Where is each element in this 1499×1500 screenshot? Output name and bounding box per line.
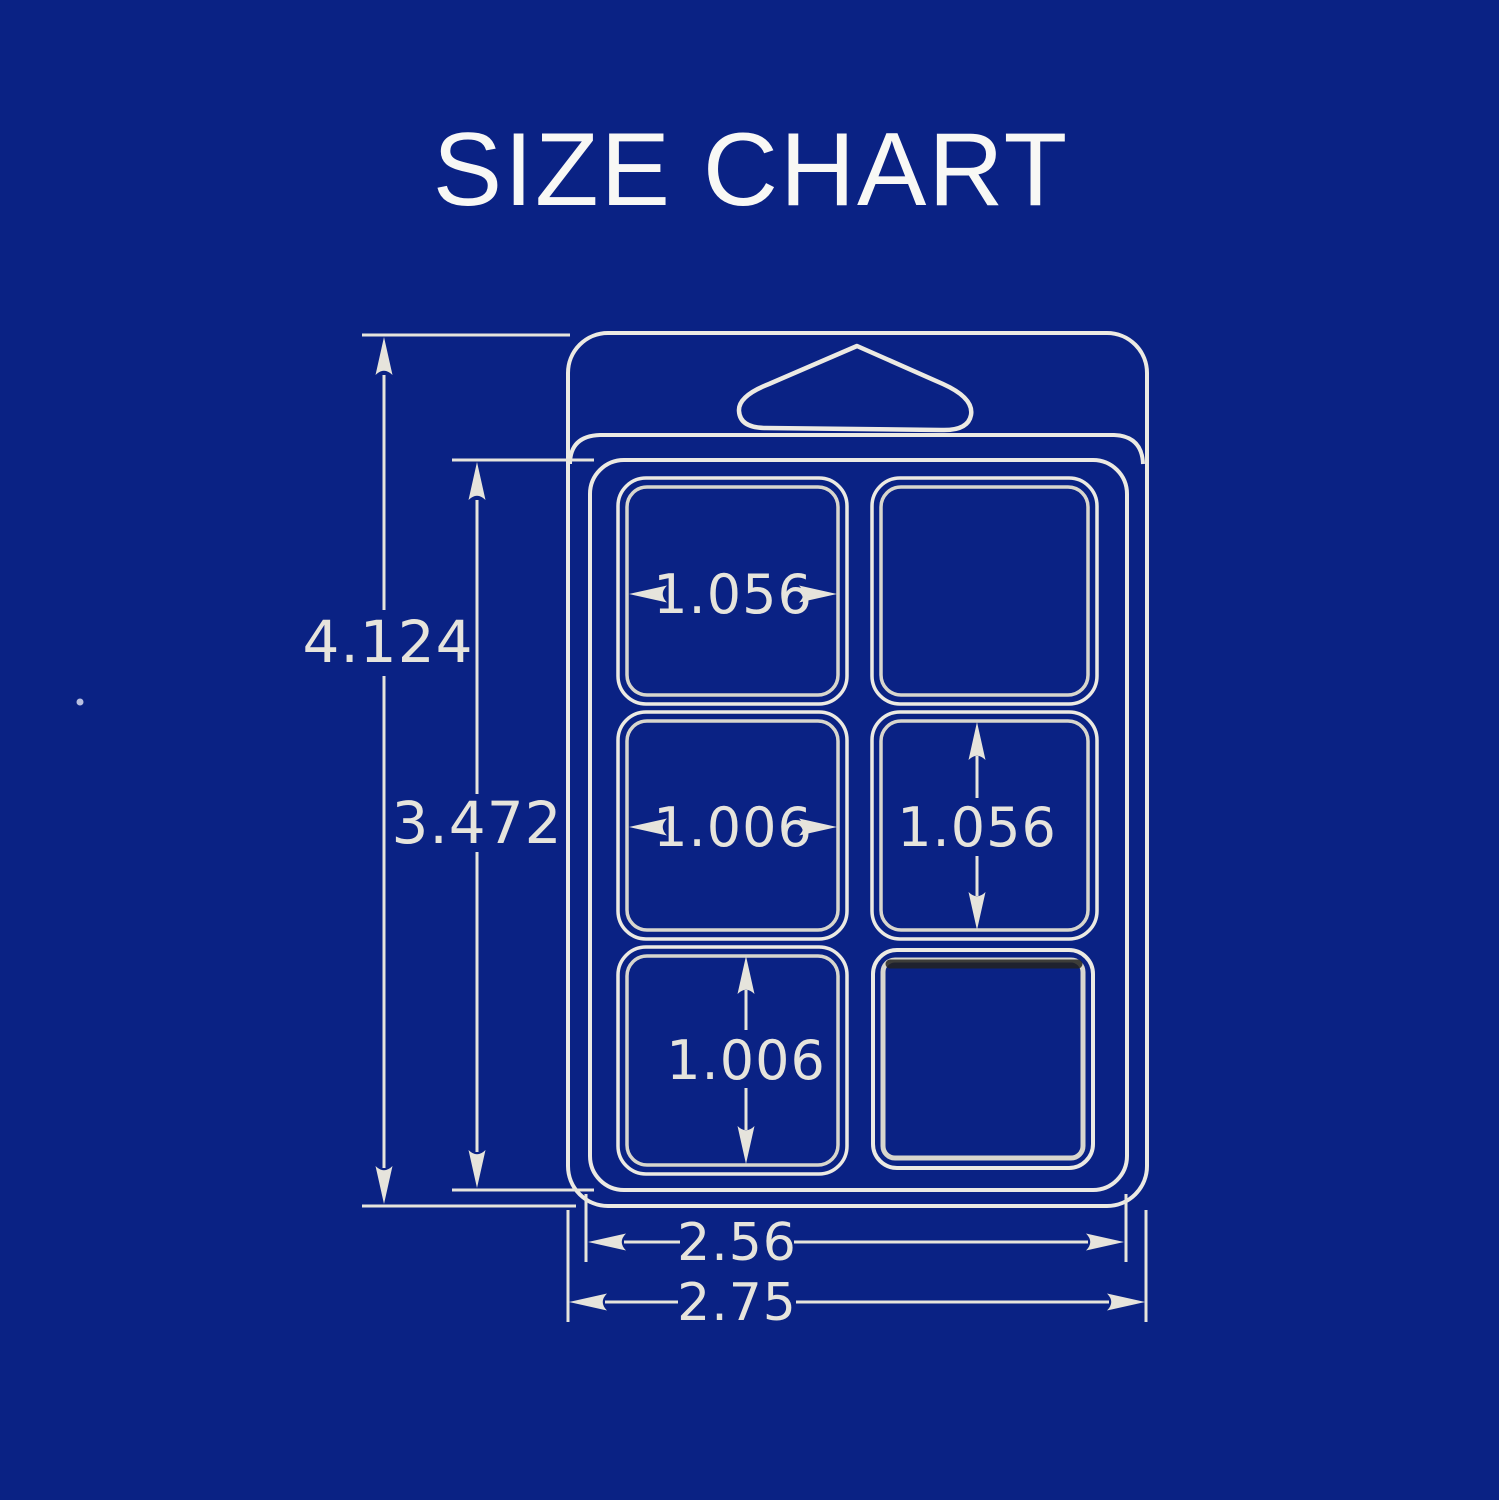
dim-overall-height-label: 4.124 bbox=[302, 608, 473, 676]
dimension-annotations: 4.124 3.472 1.056 1.006 1.05 bbox=[302, 335, 1146, 1333]
cavity-row1-col2 bbox=[872, 478, 1097, 704]
arrowhead-up bbox=[376, 337, 393, 375]
dim-cavity-width-top: 1.056 bbox=[629, 563, 837, 626]
size-chart-figure: SIZE CHART bbox=[0, 0, 1499, 1500]
hang-tab bbox=[739, 346, 971, 430]
arrowhead-up bbox=[469, 462, 486, 500]
cavity-outer-wall bbox=[872, 478, 1097, 704]
dim-cavity-width-middle: 1.006 bbox=[629, 796, 837, 859]
arrowhead-up bbox=[738, 956, 755, 994]
arrowhead-down bbox=[469, 1150, 486, 1188]
dim-tray-height: 3.472 bbox=[391, 460, 594, 1190]
dim-overall-width-label: 2.75 bbox=[677, 1273, 797, 1333]
stray-dot-artifact bbox=[77, 699, 84, 706]
dim-cavity-width-top-label: 1.056 bbox=[653, 563, 813, 626]
cavity-inner-wall bbox=[881, 487, 1088, 695]
arrowhead-down bbox=[969, 892, 986, 930]
arrowhead-left bbox=[569, 1294, 607, 1311]
dim-cavity-height-middle: 1.056 bbox=[897, 722, 1057, 930]
arrowhead-up bbox=[969, 722, 986, 760]
cavity-inner-wall bbox=[883, 960, 1083, 1158]
arrowhead-down bbox=[376, 1166, 393, 1204]
dim-tray-width-label: 2.56 bbox=[677, 1213, 797, 1273]
arrowhead-left bbox=[588, 1234, 626, 1251]
page-title: SIZE CHART bbox=[433, 112, 1069, 228]
dim-cavity-height-middle-label: 1.056 bbox=[897, 796, 1057, 859]
clamshell-outline bbox=[568, 333, 1147, 1206]
dim-cavity-height-bottom-label: 1.006 bbox=[666, 1029, 826, 1092]
cavity-row3-col2 bbox=[873, 950, 1093, 1168]
clamshell-package bbox=[568, 333, 1147, 1206]
dim-tray-height-label: 3.472 bbox=[391, 789, 562, 857]
arrowhead-down bbox=[738, 1126, 755, 1164]
clamshell-diagram: SIZE CHART bbox=[0, 0, 1499, 1500]
cavity-outer-wall bbox=[873, 950, 1093, 1168]
dim-cavity-width-middle-label: 1.006 bbox=[653, 796, 813, 859]
dim-overall-height: 4.124 bbox=[302, 335, 576, 1206]
arrowhead-right bbox=[1107, 1294, 1145, 1311]
dim-cavity-height-bottom: 1.006 bbox=[666, 956, 826, 1164]
dim-overall-width: 2.75 bbox=[568, 1210, 1146, 1333]
arrowhead-right bbox=[1086, 1234, 1124, 1251]
